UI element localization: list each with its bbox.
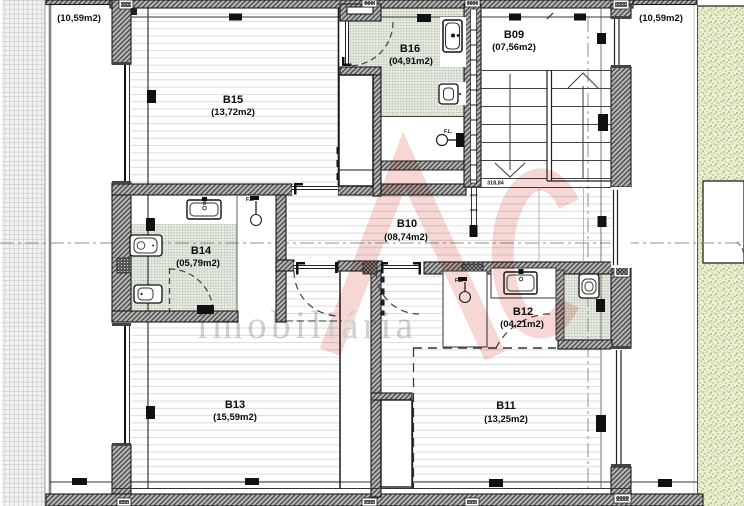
svg-text:imobiliária: imobiliária xyxy=(197,304,418,347)
svg-text:B11: B11 xyxy=(496,400,516,412)
svg-text:B15: B15 xyxy=(223,94,243,106)
svg-text:B09: B09 xyxy=(504,29,524,41)
svg-text:B16: B16 xyxy=(400,43,420,55)
svg-text:B14: B14 xyxy=(191,245,212,257)
svg-text:F.L.: F.L. xyxy=(444,129,453,135)
svg-text:F.L.: F.L. xyxy=(246,197,255,203)
svg-text:(05,79m2): (05,79m2) xyxy=(176,258,220,269)
svg-text:318,84: 318,84 xyxy=(487,181,505,187)
svg-text:(15,59m2): (15,59m2) xyxy=(213,412,257,423)
svg-text:(13,25m2): (13,25m2) xyxy=(484,414,528,425)
svg-text:(10,59m2): (10,59m2) xyxy=(57,13,101,24)
svg-text:(07,56m2): (07,56m2) xyxy=(492,42,536,53)
svg-text:(10,59m2): (10,59m2) xyxy=(639,13,683,24)
svg-text:(13,72m2): (13,72m2) xyxy=(211,107,255,118)
svg-text:B13: B13 xyxy=(225,399,245,411)
svg-text:B10: B10 xyxy=(397,218,417,230)
svg-text:(08,74m2): (08,74m2) xyxy=(384,232,428,243)
svg-text:(04,91m2): (04,91m2) xyxy=(389,56,433,67)
